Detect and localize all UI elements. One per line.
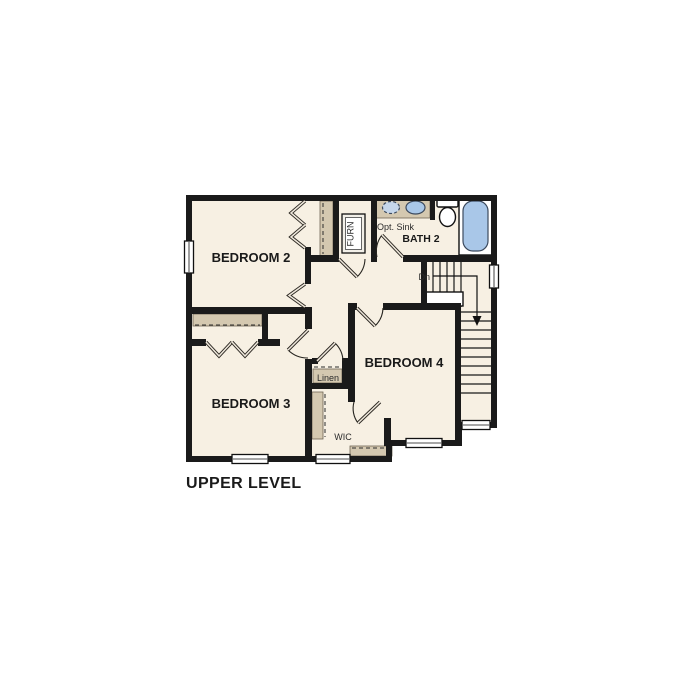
floor-plan-page: BEDROOM 2 BEDROOM 3 BEDROOM 4 BATH 2 WIC… — [0, 0, 687, 687]
bedroom4-window — [406, 439, 442, 448]
toilet — [437, 199, 458, 227]
optional-sink — [383, 202, 400, 214]
linen-label: Linen — [317, 373, 339, 383]
wic-window — [316, 455, 350, 464]
stairwell-side-window — [490, 265, 499, 288]
plan-title: UPPER LEVEL — [186, 475, 302, 492]
wic-label: WIC — [334, 432, 352, 442]
bedroom3-closet-shelf — [193, 314, 262, 326]
bedroom3-label: BEDROOM 3 — [212, 396, 291, 411]
bedroom2-label: BEDROOM 2 — [212, 250, 291, 265]
bathtub — [459, 197, 492, 255]
stairwell-bottom-window — [462, 421, 490, 430]
sink — [406, 201, 425, 214]
bath2-label: BATH 2 — [402, 233, 439, 245]
bedroom2-closet-shelf — [320, 201, 333, 256]
opt-sink-label: Opt. Sink — [377, 222, 415, 232]
bedroom3-window — [232, 455, 268, 464]
bedroom4-label: BEDROOM 4 — [365, 355, 445, 370]
floor-plan-drawing: BEDROOM 2 BEDROOM 3 BEDROOM 4 BATH 2 WIC… — [0, 0, 687, 687]
furn-label: FURN — [346, 222, 356, 247]
wic-bottom-shelf — [350, 446, 392, 456]
wic-side-shelf — [312, 392, 325, 439]
stairs-down-label: Dn — [418, 272, 430, 282]
bedroom2-window — [185, 241, 194, 273]
